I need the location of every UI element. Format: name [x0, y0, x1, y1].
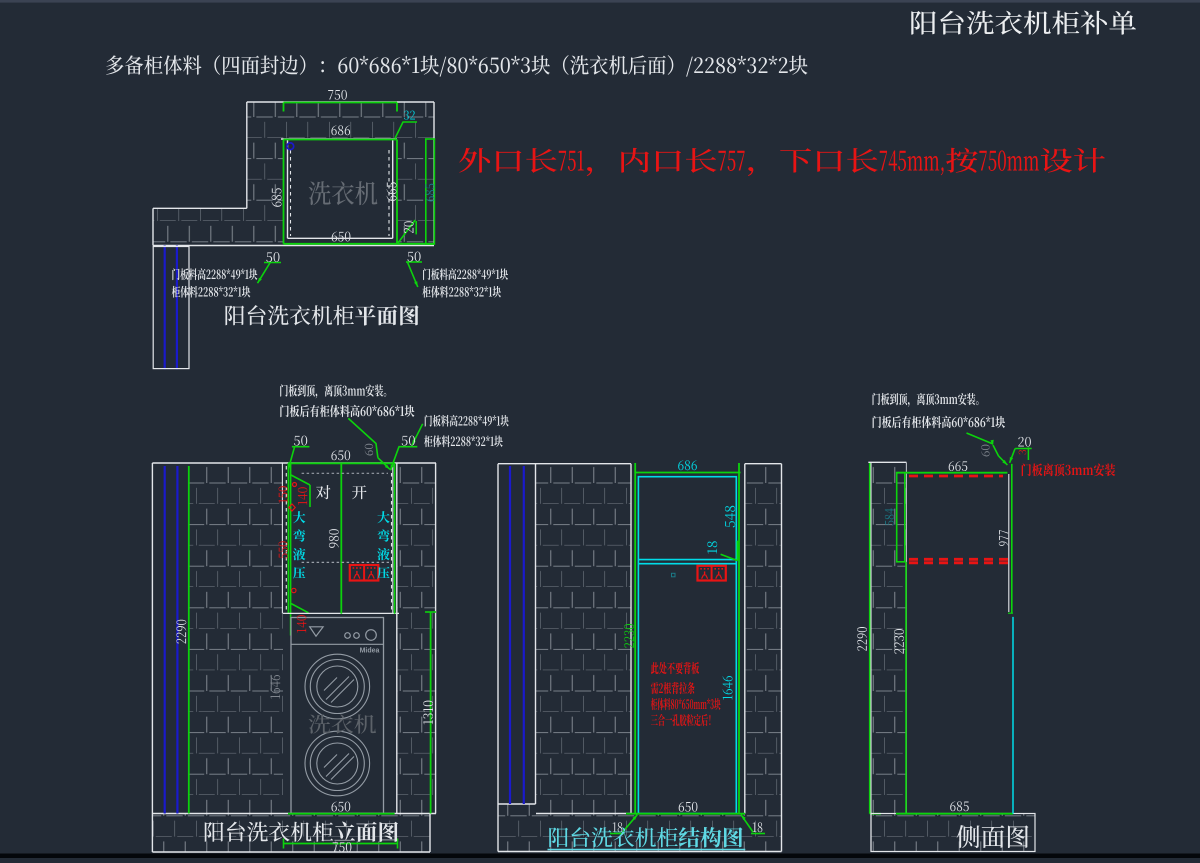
svg-text:Midea: Midea [360, 648, 380, 655]
